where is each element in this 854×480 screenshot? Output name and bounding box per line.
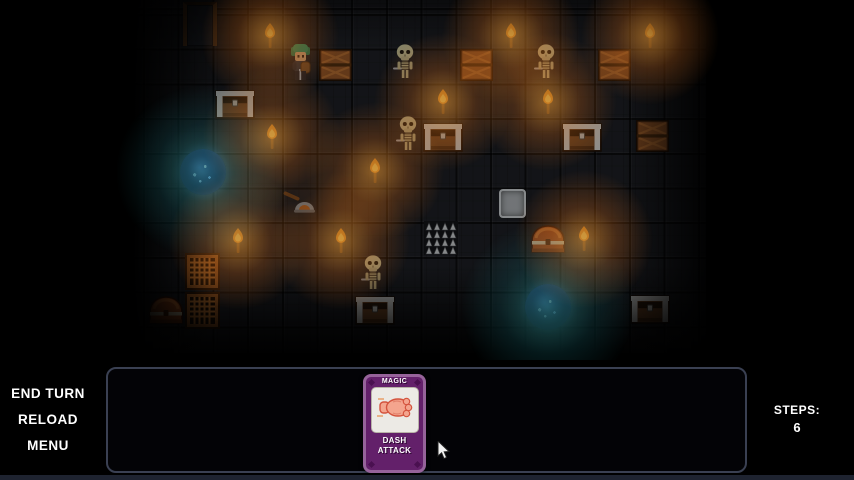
hud-buttons: END TURN RELOAD MENU xyxy=(8,386,88,464)
portal-sprite[interactable] xyxy=(180,149,226,195)
card-name-line1: DASH xyxy=(366,436,423,446)
torch-sprite xyxy=(265,123,279,151)
skeleton-sprite[interactable] xyxy=(392,44,418,80)
crate-sprite xyxy=(319,49,352,81)
card-art xyxy=(371,387,419,433)
shovel-sprite xyxy=(282,191,318,217)
end-turn-button[interactable]: END TURN xyxy=(8,386,88,401)
hand-card-panel: MAGIC DASH ATTACK xyxy=(106,367,747,473)
steps-label: STEPS: xyxy=(765,403,829,417)
torch-sprite xyxy=(541,88,555,116)
domechest-sprite[interactable] xyxy=(147,295,185,326)
bottom-hud: END TURN RELOAD MENU MAGIC xyxy=(0,360,854,480)
crate-sprite xyxy=(636,120,669,152)
skeleton-sprite[interactable] xyxy=(395,116,421,152)
menu-button[interactable]: MENU xyxy=(8,438,88,453)
gratecrate-sprite xyxy=(185,292,220,329)
spikes-sprite xyxy=(424,221,458,255)
torch-sprite xyxy=(436,88,450,116)
bottom-strip xyxy=(0,475,854,480)
chest-sprite[interactable] xyxy=(355,295,395,325)
plate-sprite xyxy=(499,189,526,218)
card-gem-icon xyxy=(414,461,421,468)
mouse-cursor-icon xyxy=(437,441,451,465)
torch-sprite xyxy=(504,22,518,50)
skeleton-sprite[interactable] xyxy=(533,44,559,80)
torch-sprite xyxy=(368,157,382,185)
torch-sprite xyxy=(643,22,657,50)
dungeon-map xyxy=(0,0,854,360)
torch-sprite xyxy=(334,227,348,255)
torch-sprite xyxy=(263,22,277,50)
torch-sprite xyxy=(577,225,591,253)
door-sprite xyxy=(183,2,217,46)
crate-sprite xyxy=(598,49,631,81)
skeleton-sprite[interactable] xyxy=(360,255,386,291)
sprite-layer xyxy=(0,0,854,360)
chest-sprite[interactable] xyxy=(215,89,255,119)
gratecrate-sprite xyxy=(185,253,220,290)
chest-sprite[interactable] xyxy=(562,122,602,152)
card-name-line2: ATTACK xyxy=(366,446,423,456)
steps-value: 6 xyxy=(765,420,829,435)
domechest-sprite[interactable] xyxy=(529,224,567,255)
chest-sprite[interactable] xyxy=(423,122,463,152)
chest-sprite[interactable] xyxy=(630,294,670,324)
torch-sprite xyxy=(231,227,245,255)
hero-sprite[interactable] xyxy=(287,44,314,82)
reload-button[interactable]: RELOAD xyxy=(8,412,88,427)
card-gem-icon xyxy=(368,461,375,468)
steps-counter: STEPS: 6 xyxy=(765,403,829,435)
fist-icon xyxy=(375,389,415,432)
card-dash-attack[interactable]: MAGIC DASH ATTACK xyxy=(363,374,426,473)
crate-sprite xyxy=(460,49,493,81)
portal-sprite[interactable] xyxy=(525,284,571,330)
card-name: DASH ATTACK xyxy=(366,436,423,456)
